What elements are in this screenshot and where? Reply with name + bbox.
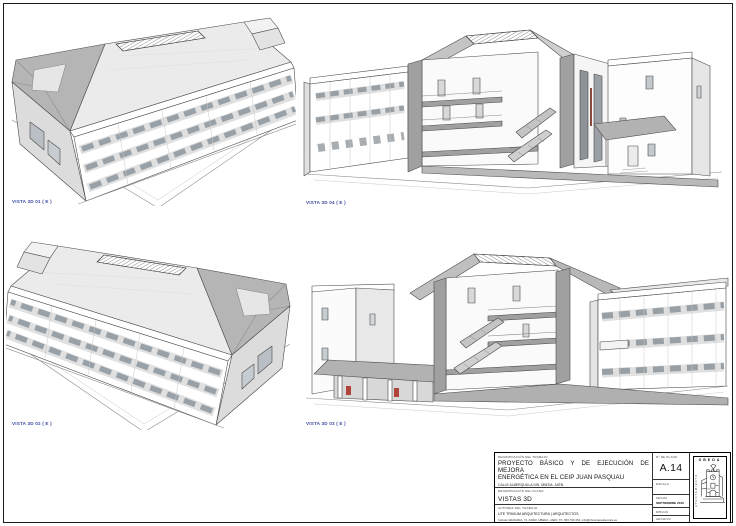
authors-line2: CALLE GRANADA, 74. 23400. ÚBEDA. JAÉN. T… xyxy=(498,518,649,522)
view-label-01: VISTA 3D 01 ( E ) xyxy=(12,199,52,204)
vista-3d-02-drawing xyxy=(6,228,294,430)
vista-3d-01-drawing xyxy=(8,4,296,206)
work-label: DENOMINACIÓN DEL TRABAJO xyxy=(498,455,649,459)
authors-cell: AUTORES DEL TRABAJO UTE TRIVIUM ARQUITEC… xyxy=(495,505,652,523)
title-block: DENOMINACIÓN DEL TRABAJO PROYECTO BÁSICO… xyxy=(494,452,731,523)
ubeda-tower-logo-icon xyxy=(700,464,725,507)
sheet-number: A.14 xyxy=(656,462,686,474)
title-block-main-column: DENOMINACIÓN DEL TRABAJO PROYECTO BÁSICO… xyxy=(495,453,653,522)
scale-cell: ESCALA xyxy=(653,480,689,494)
work-title-cell: DENOMINACIÓN DEL TRABAJO PROYECTO BÁSICO… xyxy=(495,453,652,488)
file-label: ARCHIVO xyxy=(656,517,686,521)
authors-label: AUTORES DEL TRABAJO xyxy=(498,506,649,510)
view-label-03: VISTA 3D 03 ( E ) xyxy=(306,421,346,426)
authors-line1: UTE TRIVIUM ARQUITECTURA | ARQUITECTOS xyxy=(498,512,649,516)
drawn-label: DIBUJO xyxy=(656,510,686,514)
logo-vertical-text: AYUNTAMIENTO xyxy=(695,465,700,516)
vista-3d-03-drawing xyxy=(298,238,732,434)
plan-label: DENOMINACIÓN DEL PLANO xyxy=(498,489,649,493)
work-title-line2: ENERGÉTICA EN EL CEIP JUAN PASQUAU xyxy=(498,474,649,481)
date-cell: FECHA SEPTIEMBRE 2016 xyxy=(653,495,689,508)
logo-city-name: ÚBEDA xyxy=(694,458,726,462)
scale-label: ESCALA xyxy=(656,482,686,486)
work-address: CALLE ALBERQUILLA S/N. ÚBEDA. JAÉN. xyxy=(498,483,649,487)
file-cell: ARCHIVO xyxy=(653,516,689,523)
ubeda-logo-box: ÚBEDA AYUNTAMIENTO xyxy=(693,456,727,519)
date-value: SEPTIEMBRE 2016 xyxy=(656,501,686,505)
drawing-sheet: VISTA 3D 01 ( E ) xyxy=(0,0,736,526)
title-block-logo-column: ÚBEDA AYUNTAMIENTO xyxy=(690,453,730,522)
title-block-mid-column: Nº DE PLANO A.14 ESCALA FECHA SEPTIEMBRE… xyxy=(653,453,690,522)
plan-title: VISTAS 3D xyxy=(498,496,649,503)
sheet-number-cell: Nº DE PLANO A.14 xyxy=(653,453,689,480)
sheet-number-label: Nº DE PLANO xyxy=(656,455,686,459)
vista-3d-04-drawing xyxy=(298,26,724,224)
plan-title-cell: DENOMINACIÓN DEL PLANO VISTAS 3D xyxy=(495,488,652,505)
drawn-cell: DIBUJO xyxy=(653,508,689,516)
view-label-04: VISTA 3D 04 ( E ) xyxy=(306,200,346,205)
work-title-line1: PROYECTO BÁSICO Y DE EJECUCIÓN DE MEJORA xyxy=(498,460,649,475)
view-label-02: VISTA 3D 02 ( E ) xyxy=(12,421,52,426)
date-label: FECHA xyxy=(656,496,686,500)
